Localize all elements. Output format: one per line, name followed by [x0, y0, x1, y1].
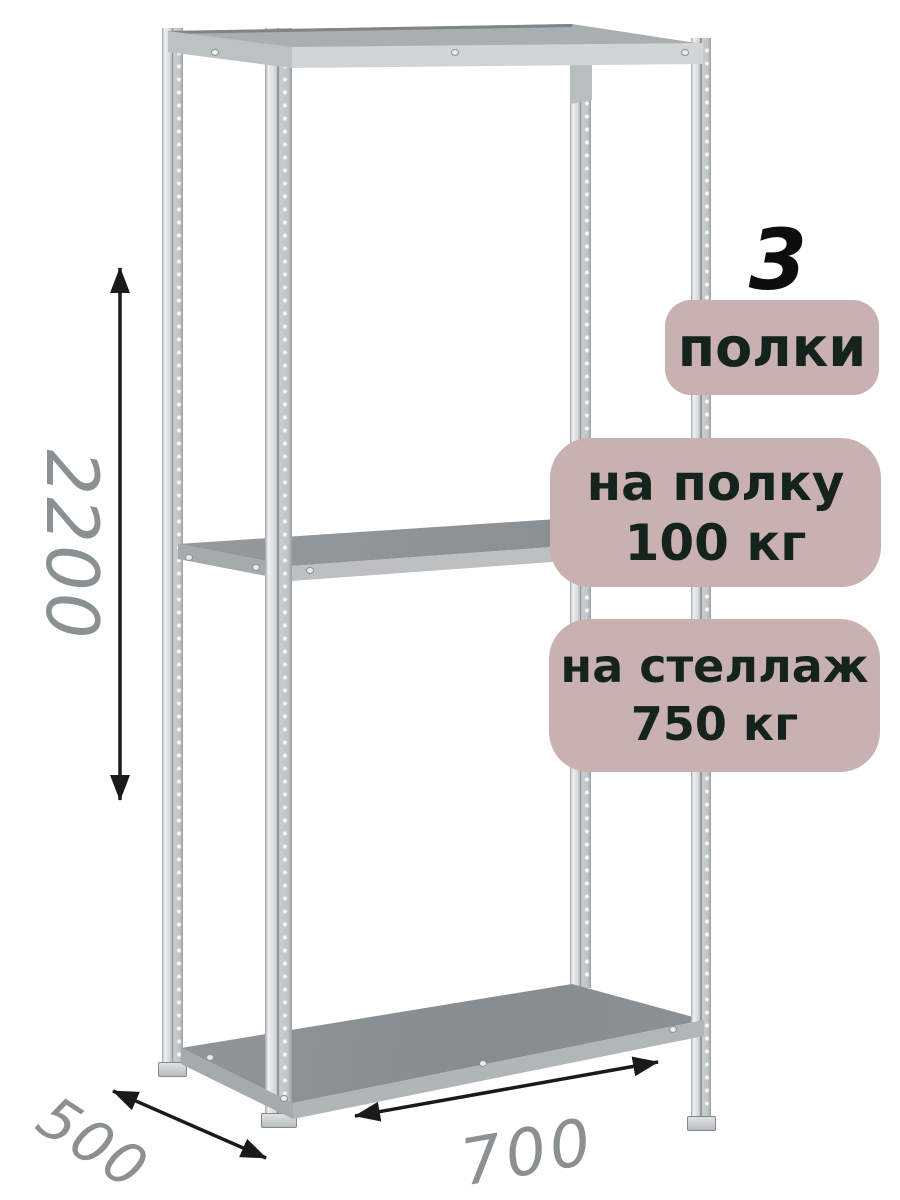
per-shelf-capacity-line1: на полку — [587, 453, 845, 513]
bottom-shelf-front-edge — [0, 0, 900, 1200]
per-shelf-capacity-line2: 100 кг — [625, 513, 807, 573]
rack-front-left-post — [265, 28, 292, 1115]
rivet — [452, 50, 458, 55]
shelf-count-badge: полки — [665, 300, 879, 395]
rack-rear-left-foot — [158, 1062, 187, 1077]
middle-shelf-front-edge — [0, 0, 900, 1200]
per-rack-capacity-line2: 750 кг — [631, 696, 798, 754]
depth-dimension-label: 500 — [7, 1070, 179, 1200]
rivet — [253, 565, 259, 570]
rack-front-left-foot — [261, 1113, 297, 1128]
height-dimension-label: 2200 — [32, 429, 112, 661]
per-shelf-capacity-badge: на полку 100 кг — [550, 438, 881, 587]
bottom-shelf-surface — [0, 0, 900, 1200]
shelf-count: 3 — [728, 218, 828, 302]
rivet — [307, 568, 313, 573]
rack-rear-right-bracket — [0, 0, 900, 1200]
rivet — [212, 50, 218, 55]
shelf-count-badge-label: полки — [678, 316, 866, 379]
rivet — [207, 1055, 213, 1060]
dimension-arrows — [0, 0, 900, 1200]
width-dimension-label: 700 — [423, 1099, 633, 1200]
rivet — [281, 1096, 287, 1101]
rack-rear-left-post — [162, 28, 183, 1062]
rivet — [186, 555, 192, 560]
top-shelf-rear-edge — [0, 0, 900, 1200]
rivet — [480, 1061, 486, 1066]
top-shelf-left-beam — [0, 0, 900, 1200]
middle-shelf-surface — [0, 0, 900, 1200]
product-image: 2200 500 700 3 полки на полку 100 кг на … — [0, 0, 900, 1200]
top-shelf-front-beam — [0, 0, 900, 1200]
per-rack-capacity-line1: на стеллаж — [560, 638, 868, 696]
bottom-shelf-left-edge — [0, 0, 900, 1200]
top-shelf-surface — [0, 0, 900, 1200]
rack-front-right-foot — [687, 1116, 716, 1131]
rivet — [682, 50, 688, 55]
per-rack-capacity-badge: на стеллаж 750 кг — [549, 619, 880, 772]
middle-shelf-left-edge — [0, 0, 900, 1200]
rivet — [670, 1027, 676, 1032]
